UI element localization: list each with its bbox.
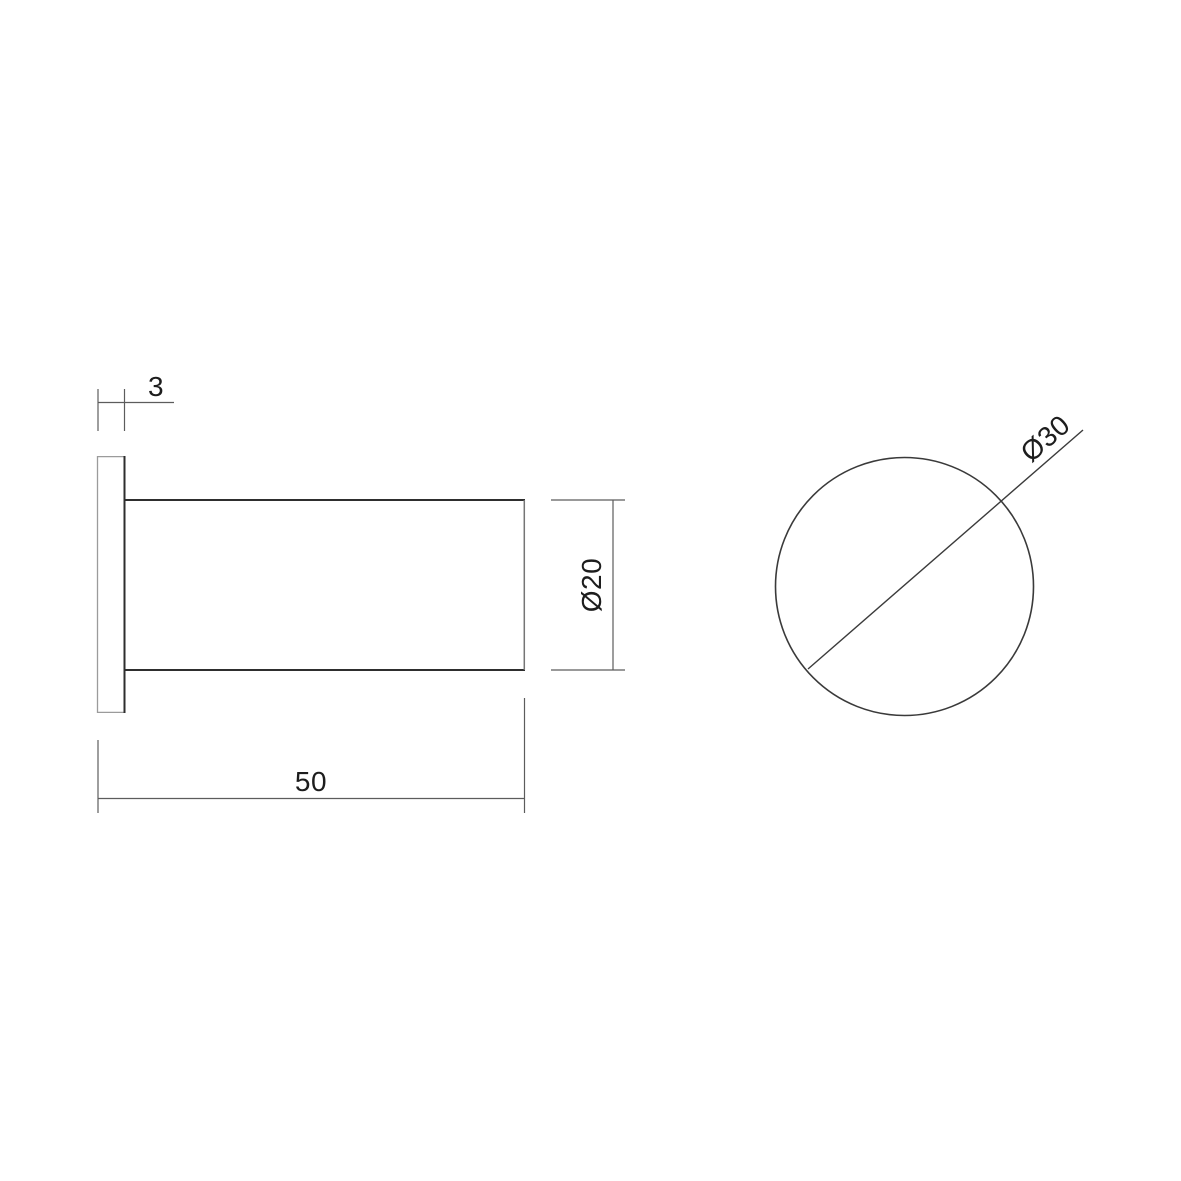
front-view — [776, 458, 1034, 716]
technical-drawing: 3Ø2050Ø30 — [0, 0, 1181, 1181]
dimension-cylinder-length: 50 — [98, 698, 525, 813]
drawing-canvas: 3Ø2050Ø30 — [0, 0, 1181, 1181]
dimension-front-diameter: Ø30 — [808, 409, 1083, 669]
dimension-line — [808, 430, 1083, 669]
dimension-cylinder-diameter: Ø20 — [551, 500, 625, 670]
front-circle — [776, 458, 1034, 716]
dimension-label-cylinder-diameter: Ø20 — [576, 558, 607, 612]
side-view — [98, 456, 526, 713]
dimension-label-front-diameter: Ø30 — [1015, 409, 1076, 468]
dimension-label-flange-thickness: 3 — [148, 371, 164, 402]
dimension-label-cylinder-length: 50 — [295, 766, 327, 797]
dimension-flange-thickness: 3 — [98, 371, 174, 431]
